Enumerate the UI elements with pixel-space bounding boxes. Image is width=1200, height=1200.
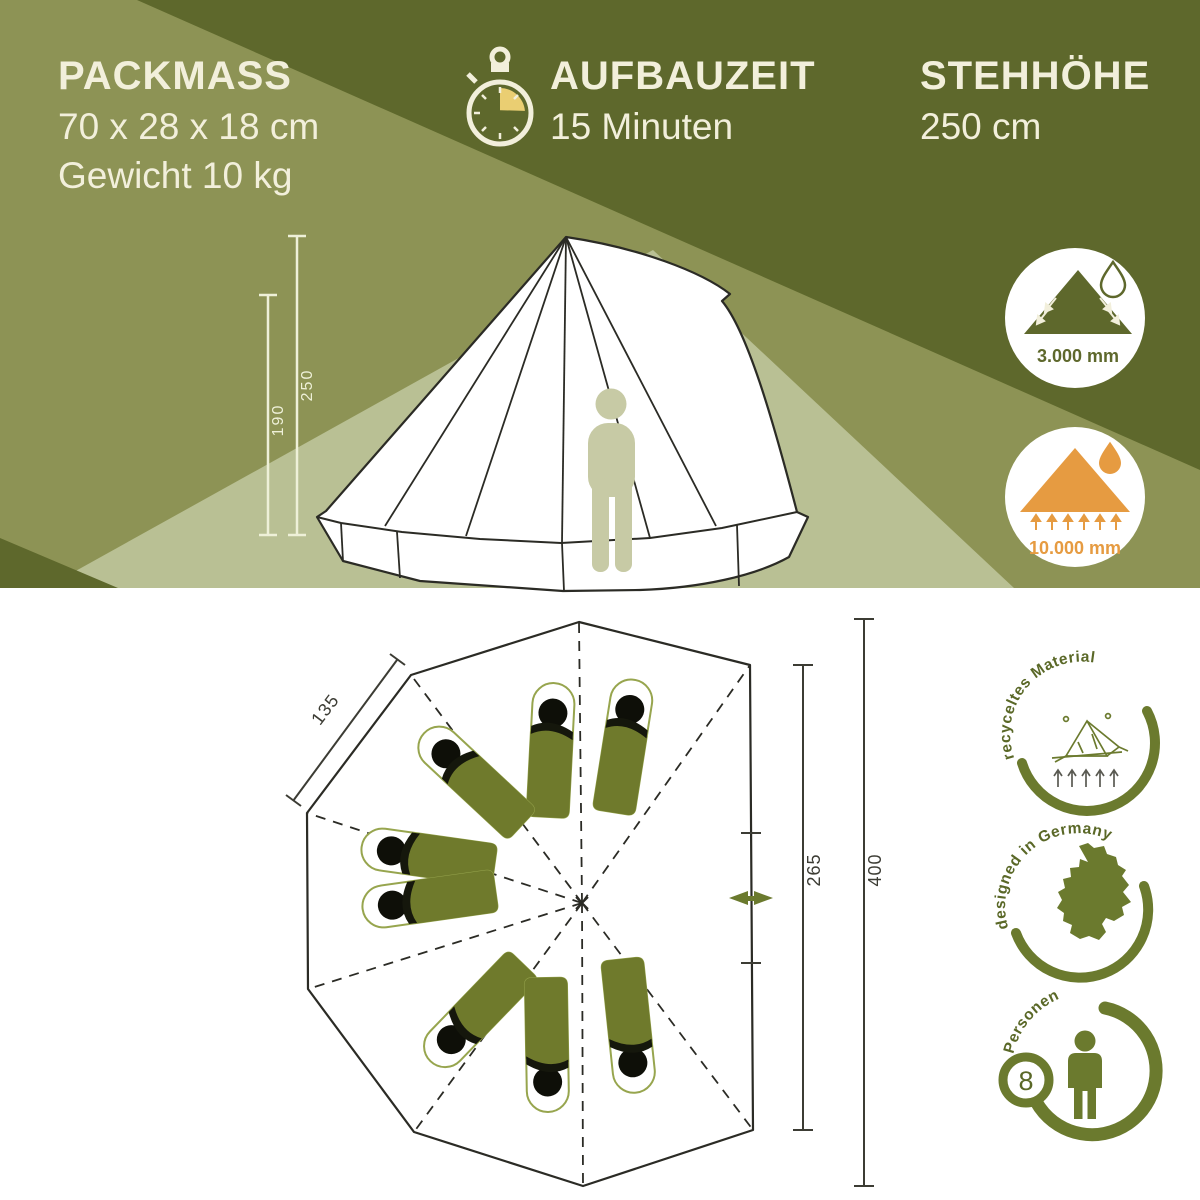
sleeping-bag [527, 682, 576, 818]
person-count: 8 [1018, 1066, 1033, 1096]
aufbauzeit-value: 15 Minuten [550, 106, 733, 147]
packmass-title: PACKMASS [58, 54, 292, 98]
flysheet-waterproof-badge: 3.000 mm [1005, 248, 1145, 388]
flysheet-waterproof-value: 3.000 mm [1037, 346, 1119, 366]
aufbauzeit-title: AUFBAUZEIT [550, 54, 816, 98]
total-height-label: 250 [299, 369, 316, 402]
length-label: 400 [865, 853, 885, 886]
packmass-weight: Gewicht 10 kg [58, 155, 292, 196]
door-wall-label: 265 [804, 853, 824, 886]
groundsheet-waterproof-badge: 10.000 mm [1005, 427, 1145, 567]
packmass-block: PACKMASS 70 x 28 x 18 cm Gewicht 10 kg [58, 54, 319, 196]
groundsheet-waterproof-value: 10.000 mm [1029, 538, 1121, 558]
stehhoehe-title: STEHHÖHE [920, 53, 1150, 98]
product-infographic: PACKMASS 70 x 28 x 18 cm Gewicht 10 kg A [0, 0, 1200, 1200]
sleeping-bag [525, 978, 569, 1113]
wall-height-label: 190 [270, 404, 287, 437]
stehhoehe-value: 250 cm [920, 106, 1041, 147]
packmass-size: 70 x 28 x 18 cm [58, 106, 319, 147]
